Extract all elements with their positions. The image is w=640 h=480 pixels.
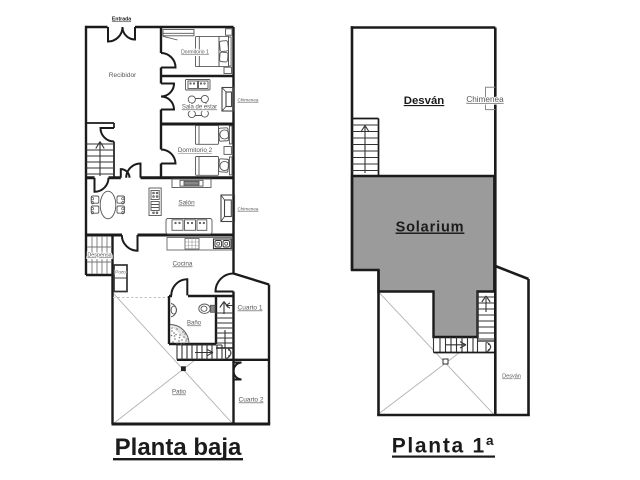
- svg-text:Chimenea: Chimenea: [466, 95, 504, 104]
- svg-text:Desván: Desván: [404, 95, 445, 107]
- svg-text:Entrada: Entrada: [112, 17, 131, 23]
- svg-text:Cuarto 2: Cuarto 2: [239, 397, 264, 404]
- svg-text:Cocina: Cocina: [173, 261, 193, 268]
- svg-text:Cuarto 1: Cuarto 1: [238, 305, 263, 312]
- svg-text:Dormitorio 2: Dormitorio 2: [178, 147, 213, 154]
- svg-text:Solarium: Solarium: [396, 220, 465, 236]
- svg-text:Desván: Desván: [502, 374, 521, 380]
- svg-text:Patio: Patio: [172, 389, 187, 396]
- svg-text:Dormitorio 1: Dormitorio 1: [181, 50, 209, 56]
- svg-text:Sala de estar: Sala de estar: [182, 105, 217, 111]
- svg-text:Chimenea: Chimenea: [238, 207, 259, 212]
- svg-text:Planta 1ª: Planta 1ª: [392, 435, 496, 458]
- svg-text:Planta baja: Planta baja: [115, 434, 242, 461]
- svg-text:Recibidor: Recibidor: [109, 72, 137, 79]
- svg-text:Baño: Baño: [187, 321, 202, 327]
- svg-text:Salón: Salón: [178, 200, 195, 207]
- svg-text:Despensa: Despensa: [87, 253, 111, 259]
- svg-text:Chimenea: Chimenea: [238, 98, 259, 103]
- svg-text:Pozo: Pozo: [115, 270, 126, 275]
